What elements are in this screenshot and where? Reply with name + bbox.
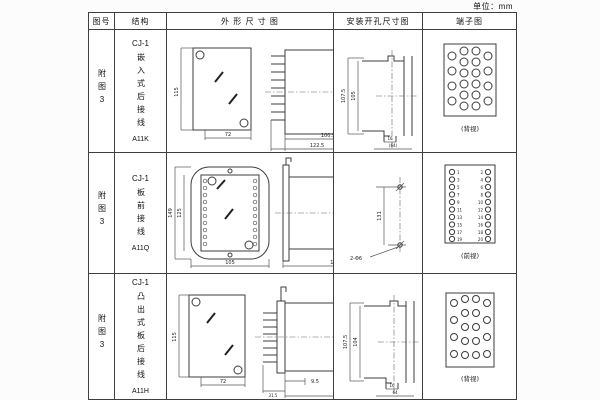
structure-mounting: 板前接线 [137, 188, 145, 240]
terminal-number: 5 [457, 185, 460, 190]
structure-series: CJ-1 [132, 39, 149, 48]
figure-no: 附图3 [98, 69, 106, 109]
structure-model: A11K [132, 136, 149, 143]
dim-label: 131 [377, 211, 383, 221]
terminal-number: 15 [457, 223, 463, 228]
header-figure-no: 图号 [89, 13, 115, 30]
install-cell: 107.5 105 16 (64) [334, 30, 423, 153]
outline-drawing-a11q: 149 125 105 [167, 153, 333, 273]
dimension-table: 图号 结构 外 形 尺 寸 图 安装开孔尺寸图 端子图 附图3 CJ-1 嵌入式… [88, 12, 517, 400]
terminal-number: 3 [457, 178, 460, 183]
terminal-cell: (背视) [423, 30, 517, 153]
dim-label: 125 [177, 208, 183, 218]
terminal-cell: 1 3 5 7 9 11 13 15 17 19 2 4 6 8 10 12 1 [423, 153, 517, 274]
dim-label: 104 [353, 337, 359, 347]
terminal-number: 13 [457, 215, 463, 220]
terminal-number: 19 [457, 237, 463, 242]
terminal-caption: (前视) [461, 251, 479, 260]
terminal-number: 11 [457, 208, 463, 213]
install-drawing-a11h: 107.5 104 16 64 [334, 275, 422, 399]
terminal-diagram-a11k: (背视) [423, 30, 516, 152]
structure-cell: CJ-1 板前接线 A11Q [115, 153, 167, 274]
terminal-number: 1 [457, 170, 460, 175]
install-drawing-a11q: 131 2-Φ6 [334, 153, 422, 273]
structure-mounting: 凸出式板后接线 [137, 292, 145, 383]
dim-label: 31.5 [269, 393, 278, 398]
outline-cell: 149 125 105 [167, 153, 334, 274]
terminal-number: 14 [478, 215, 484, 220]
header-install: 安装开孔尺寸图 [334, 13, 423, 30]
table-row: 附图3 CJ-1 凸出式板后接线 A11H 115 [89, 274, 517, 400]
terminal-number: 8 [480, 193, 483, 198]
dim-label: 105 [225, 260, 235, 266]
outline-drawing-a11k: 115 72 [167, 30, 333, 152]
figure-no: 附图3 [98, 314, 106, 354]
header-row: 图号 结构 外 形 尺 寸 图 安装开孔尺寸图 端子图 [89, 13, 517, 30]
dim-label: 149 [168, 208, 174, 218]
dim-label: 72 [225, 132, 231, 138]
header-terminal: 端子图 [423, 13, 517, 30]
table-row: 附图3 CJ-1 嵌入式后接线 A11K 115 [89, 30, 517, 153]
figure-no: 附图3 [98, 191, 106, 231]
terminal-number: 16 [478, 223, 484, 228]
terminal-number: 18 [478, 230, 484, 235]
terminal-number: 10 [478, 200, 484, 205]
structure-series: CJ-1 [132, 174, 149, 183]
terminal-caption: (背视) [461, 124, 479, 133]
header-structure: 结构 [115, 13, 167, 30]
structure-model: A11H [132, 388, 149, 395]
dim-label: 16 [389, 383, 395, 388]
dim-label: 9.5 [311, 379, 319, 385]
structure-cell: CJ-1 凸出式板后接线 A11H [115, 274, 167, 400]
install-cell: 131 2-Φ6 [334, 153, 423, 274]
dim-label: 64 [392, 390, 398, 395]
terminal-number: 9 [457, 200, 460, 205]
terminal-number: 20 [478, 237, 484, 242]
structure-mounting: 嵌入式后接线 [137, 53, 145, 131]
dim-label: 115 [174, 87, 180, 97]
outline-cell: 115 72 [167, 274, 334, 400]
dim-label: 105 [351, 91, 357, 101]
terminal-number: 17 [457, 230, 463, 235]
manual-page: { "page": { "unit_label": "单位：mm" }, "ta… [0, 0, 600, 400]
outline-cell: 115 72 [167, 30, 334, 153]
terminal-caption: (背视) [461, 374, 479, 383]
dim-label: 122.5 [310, 143, 324, 149]
structure-model: A11Q [132, 245, 149, 252]
terminal-cell: (背视) [423, 274, 517, 400]
header-outline: 外 形 尺 寸 图 [167, 13, 334, 30]
terminal-diagram-a11q: 1 3 5 7 9 11 13 15 17 19 2 4 6 8 10 12 1 [423, 153, 516, 273]
dim-label: 107.5 [341, 89, 347, 103]
terminal-number: 2 [480, 170, 483, 175]
terminal-number: 7 [457, 193, 460, 198]
terminal-number: 12 [478, 208, 484, 213]
terminal-number: 6 [480, 185, 483, 190]
dim-label: 16 [387, 136, 393, 141]
dim-label: 72 [220, 379, 226, 385]
table-row: 附图3 CJ-1 板前接线 A11Q 149 125 [89, 153, 517, 274]
structure-cell: CJ-1 嵌入式后接线 A11K [115, 30, 167, 153]
dim-label: (64) [389, 143, 398, 148]
structure-series: CJ-1 [132, 278, 149, 287]
install-drawing-a11k: 107.5 105 16 (64) [334, 30, 422, 152]
figure-no-cell: 附图3 [89, 30, 115, 153]
outline-drawing-a11h: 115 72 [167, 275, 333, 399]
dim-label: 2-Φ6 [350, 256, 362, 262]
dim-label: 115 [172, 332, 178, 342]
terminal-diagram-a11h: (背视) [423, 275, 516, 399]
terminal-number: 4 [480, 178, 483, 183]
dim-label: 100.5 [321, 133, 333, 139]
install-cell: 107.5 104 16 64 [334, 274, 423, 400]
dim-label: 107.5 [343, 334, 349, 348]
unit-label: 单位：mm [88, 1, 513, 12]
dim-label: 156 [330, 260, 333, 266]
figure-no-cell: 附图3 [89, 274, 115, 400]
figure-no-cell: 附图3 [89, 153, 115, 274]
